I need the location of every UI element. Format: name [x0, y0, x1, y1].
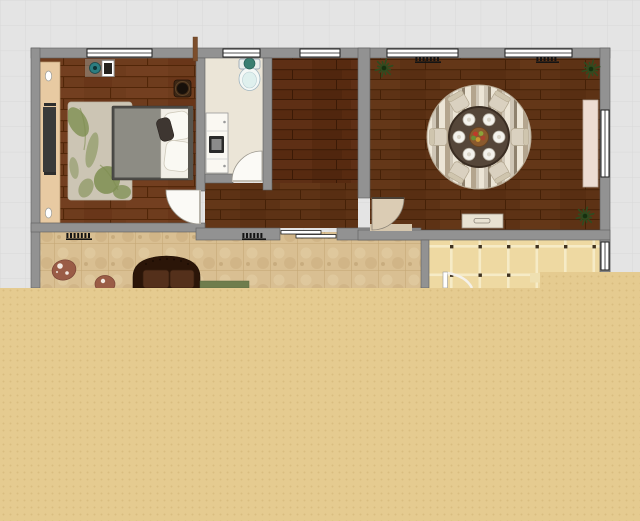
wardrobe[interactable]: [40, 62, 60, 223]
wall-dining-bottom[interactable]: [358, 230, 610, 240]
double-bed[interactable]: [112, 106, 193, 180]
wall-bedroom-bottom[interactable]: [31, 223, 205, 232]
desk-decor[interactable]: [85, 59, 115, 77]
wall-sconce[interactable]: [45, 208, 51, 218]
wall-kitchen-left[interactable]: [421, 240, 429, 288]
dining-chair[interactable]: [511, 129, 529, 146]
place-setting: [483, 148, 495, 160]
wall-corridor-bottom-left[interactable]: [196, 228, 280, 240]
console-table[interactable]: [462, 214, 503, 228]
wall-left[interactable]: [31, 48, 40, 288]
wall-dining-left[interactable]: [358, 48, 370, 198]
kitchen-window[interactable]: [601, 242, 609, 270]
teal-dish-center: [93, 66, 97, 70]
tv-bracket: [44, 172, 56, 175]
wall-bath-right[interactable]: [263, 58, 272, 190]
bathroom-window[interactable]: [223, 49, 260, 57]
bedroom-window[interactable]: [87, 49, 152, 57]
sofa-cushion: [143, 270, 169, 288]
washer-door: [212, 139, 222, 150]
dining-side-window[interactable]: [601, 110, 609, 177]
sofa-cushion: [170, 270, 194, 288]
place-setting: [463, 148, 475, 160]
picture-art: [104, 63, 112, 74]
pillow: [163, 140, 191, 173]
sideboard[interactable]: [583, 100, 598, 187]
faucet: [223, 165, 226, 168]
place-setting: [453, 131, 465, 143]
tv-panel: [43, 107, 56, 172]
wall-bedroom-hall[interactable]: [196, 58, 205, 191]
green-floor-mat[interactable]: [200, 281, 249, 288]
canvas-viewport: [0, 0, 640, 521]
dining-chair[interactable]: [430, 129, 448, 146]
dining-window-right[interactable]: [505, 49, 572, 57]
wall-bath-bottom[interactable]: [205, 174, 233, 183]
headboard: [188, 106, 193, 180]
hallway-floor[interactable]: [205, 183, 358, 228]
wall-sconce[interactable]: [45, 71, 51, 81]
plant-pot[interactable]: [174, 80, 191, 97]
faucet: [223, 121, 226, 124]
toilet[interactable]: [239, 58, 260, 91]
dining-window-left[interactable]: [387, 49, 458, 57]
vanity-with-washer[interactable]: [206, 113, 228, 173]
tan-floor-overlay[interactable]: [0, 272, 640, 521]
table-centerpiece: [470, 128, 489, 147]
wall-stub[interactable]: [193, 37, 198, 61]
place-setting: [483, 114, 495, 126]
mattress: [115, 109, 162, 178]
tv-bracket: [44, 103, 56, 106]
place-setting: [493, 131, 505, 143]
leather-sofa[interactable]: [133, 256, 200, 288]
toilet-lid: [244, 58, 255, 69]
place-setting: [463, 114, 475, 126]
floorplan-canvas: [0, 0, 640, 521]
second-room-window[interactable]: [300, 49, 340, 57]
